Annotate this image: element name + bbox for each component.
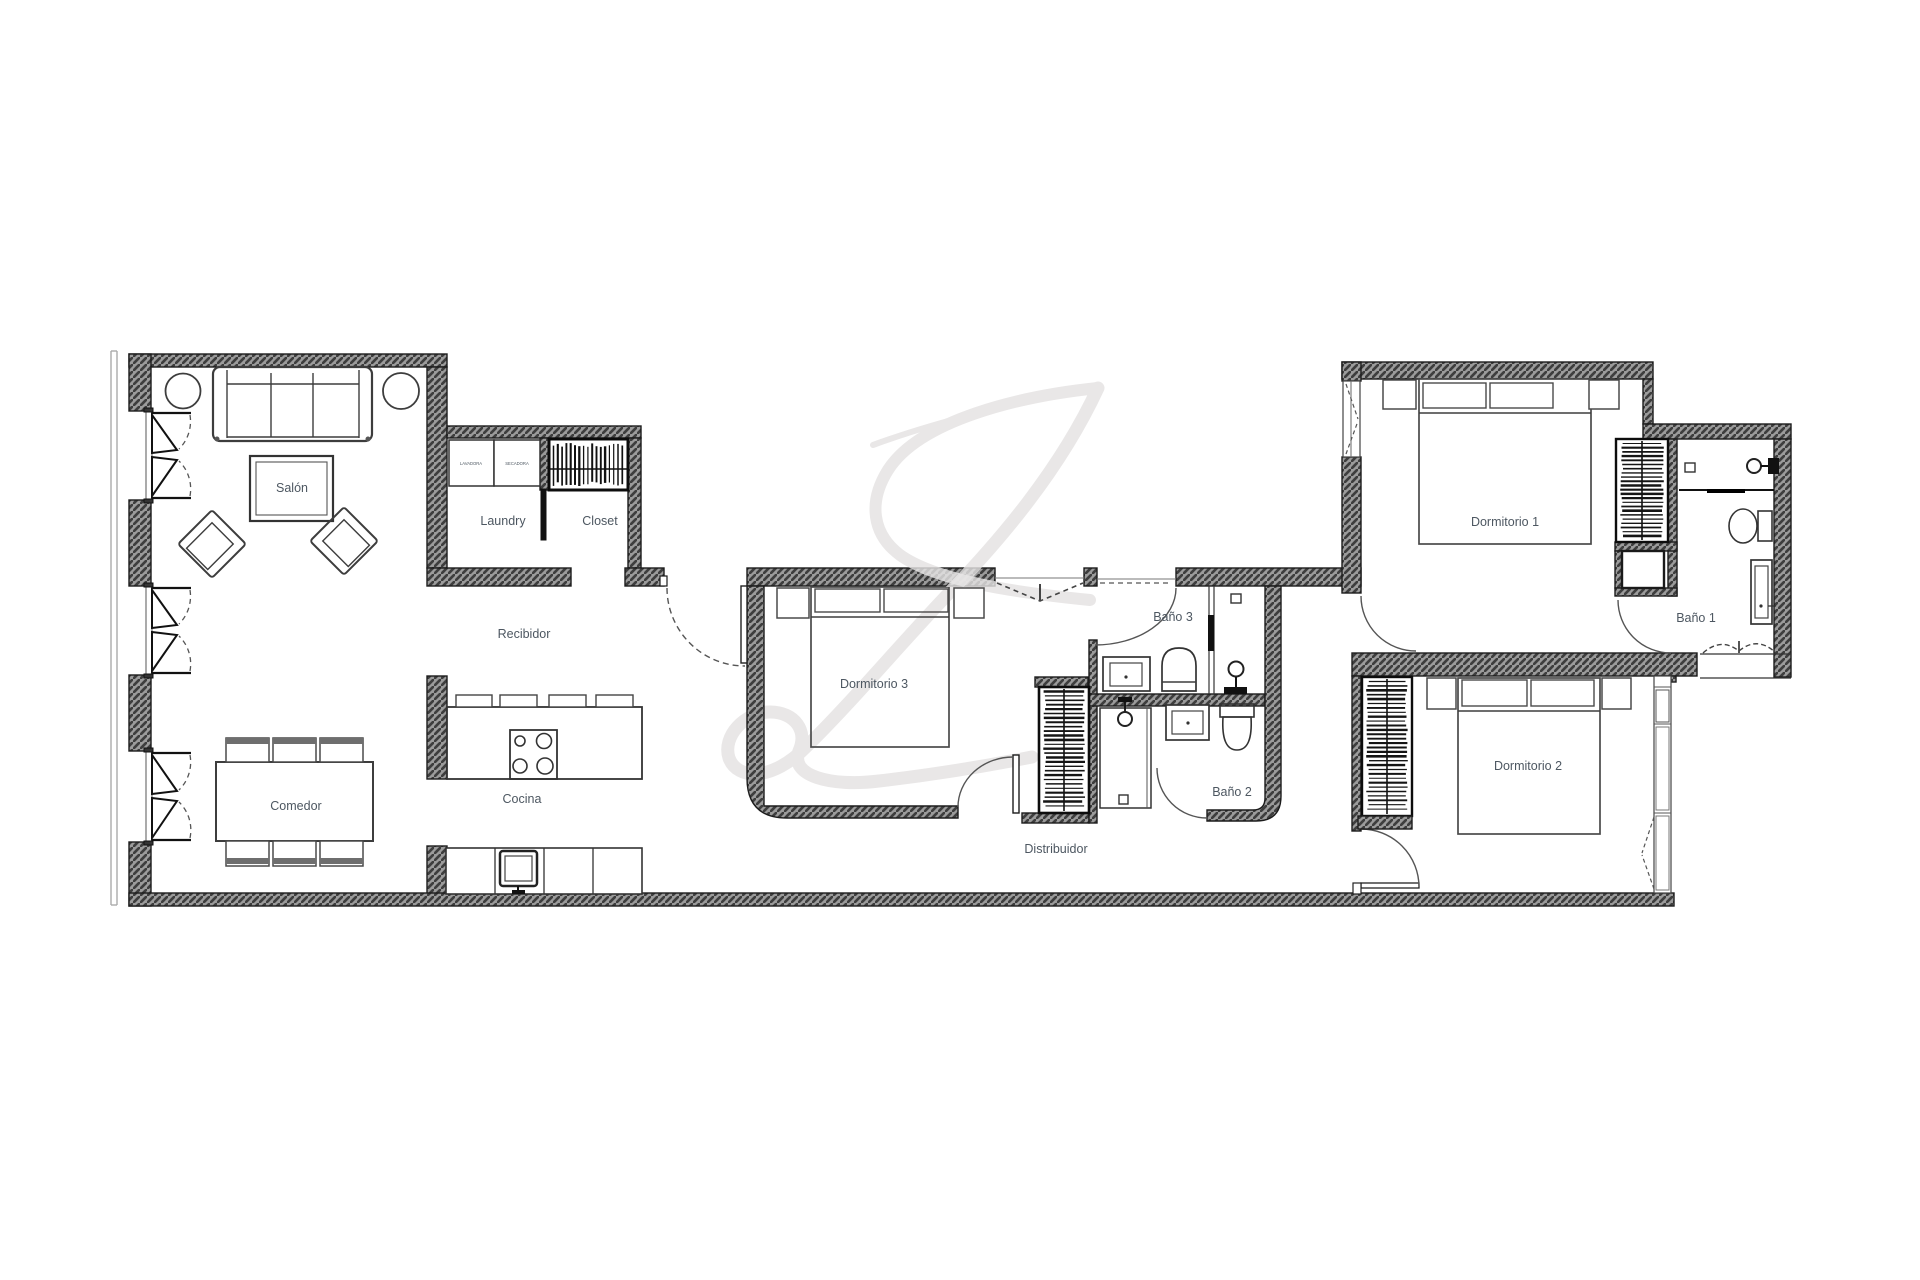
svg-text:Dormitorio 1: Dormitorio 1 [1471, 515, 1539, 529]
svg-text:SECADORA: SECADORA [505, 461, 529, 466]
svg-text:Dormitorio 2: Dormitorio 2 [1494, 759, 1562, 773]
svg-text:Distribuidor: Distribuidor [1024, 842, 1087, 856]
svg-text:Closet: Closet [582, 514, 618, 528]
svg-text:Recibidor: Recibidor [498, 627, 551, 641]
svg-text:Cocina: Cocina [503, 792, 542, 806]
svg-text:Baño 2: Baño 2 [1212, 785, 1252, 799]
svg-text:Salón: Salón [276, 481, 308, 495]
svg-text:Laundry: Laundry [480, 514, 526, 528]
svg-text:Comedor: Comedor [270, 799, 321, 813]
svg-text:Baño 3: Baño 3 [1153, 610, 1193, 624]
svg-text:LAVADORA: LAVADORA [460, 461, 482, 466]
svg-text:Dormitorio 3: Dormitorio 3 [840, 677, 908, 691]
svg-text:Baño 1: Baño 1 [1676, 611, 1716, 625]
